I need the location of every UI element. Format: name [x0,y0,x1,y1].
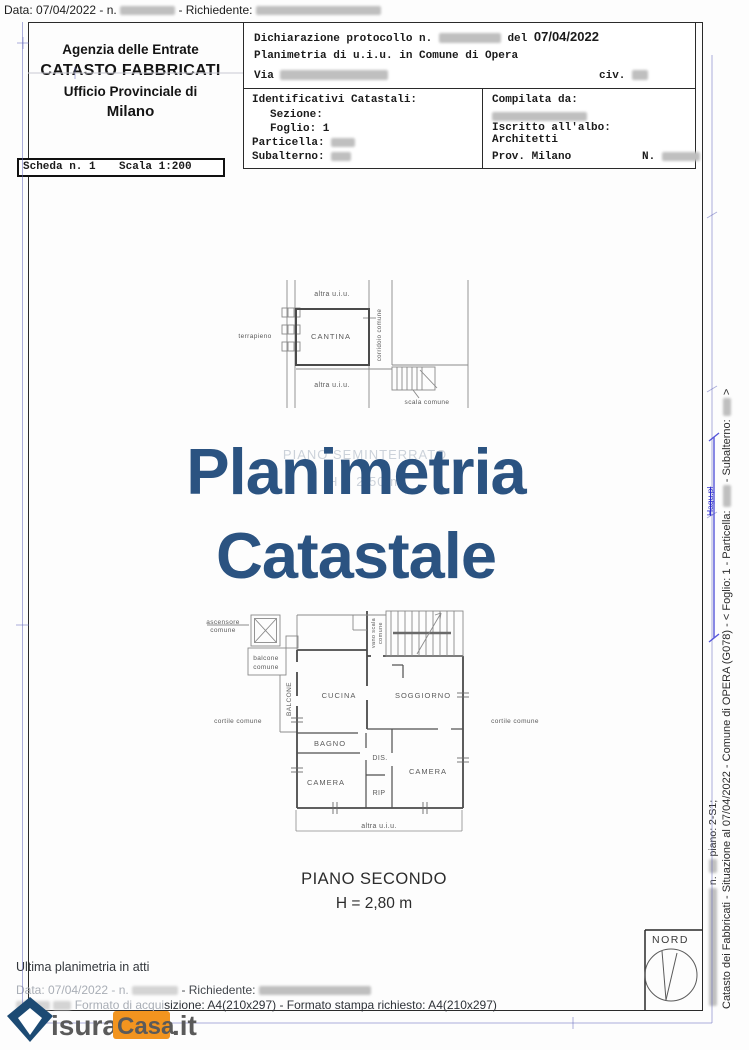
agency-line1: Agenzia delle Entrate [33,40,228,59]
visuracasa-logo[interactable]: isura Casa .it [5,994,215,1048]
height-caption: H = 2,80 m [254,895,494,913]
ultima-planimetria-label: Ultima planimetria in atti [16,960,149,974]
side-text-part3: > [721,389,733,395]
floor-caption: PIANO SECONDO [254,870,494,889]
albo-number: N. [642,151,700,163]
protocol-prefix: Dichiarazione protocollo n. [254,33,432,45]
vano-scala-label-1: vano scala [371,617,377,648]
vano-scala-label-2: comune [378,622,384,644]
compiler-title: Compilata da: [492,94,578,106]
redacted-particella [331,138,355,147]
identifiers-foglio: Foglio: 1 [270,123,329,135]
watermark: Planimetria Catastale [0,430,712,598]
identifiers-box: Identificativi Catastali: Sezione: Fogli… [243,88,696,169]
redacted-side-address [709,888,717,1006]
agency-line4: Milano [33,101,228,122]
top-scan-bar: Data: 07/04/2022 - n. - Richiedente: [4,3,381,17]
watermark-line2: Catastale [0,514,712,598]
redacted-side-subalterno [723,398,731,416]
redacted-side-number [709,859,717,873]
civ-line: civ. [599,70,648,82]
logo-it-text: .it [172,1010,197,1041]
scheda-number: Scheda n. 1 [23,161,96,173]
declaration-line2: Planimetria di u.i.u. in Comune di Opera [254,50,518,62]
via-label: Via [254,70,274,82]
balcone-comune-label-1: balcone [253,655,279,662]
cantina-stairs [392,367,437,398]
top-bar-richiedente-label: - Richiedente: [178,3,252,17]
n-label: N. [642,151,655,163]
logo-isura-text: isura [51,1010,118,1041]
civ-label: civ. [599,70,625,82]
redacted-protocol-number [120,6,175,15]
redacted-subalterno [331,152,351,161]
visuracasa-house-icon [7,997,53,1042]
redacted-protocol-no [439,33,501,43]
scheda-scale: Scala 1:200 [119,161,192,173]
dis-label: DIS. [372,755,387,762]
redacted-compiler-name [492,112,587,121]
side-piano-label: piano: 2-S1; [707,800,719,857]
redacted-footer-requester [259,986,371,995]
ascensore-label-2: comune [210,627,236,634]
redacted-street [280,70,388,80]
albo-line1: Iscritto all'albo: [492,122,611,134]
camera1-label: CAMERA [307,778,345,787]
declaration-box: Dichiarazione protocollo n. del 07/04/20… [243,22,696,90]
cucina-label: CUCINA [322,691,357,700]
albo-line2: Architetti [492,134,558,146]
redacted-civ [632,70,648,80]
main-floor-plan: ascensore comune balcone comune BALCONE … [183,598,563,848]
identifiers-subalterno: Subalterno: [252,151,351,163]
watermark-line1: Planimetria [0,430,712,514]
redacted-albo-number [662,152,700,161]
agency-header: Agenzia delle Entrate CATASTO FABBRICATI… [33,40,228,122]
soggiorno-label: SOGGIORNO [395,691,451,700]
cortile-comune-left-label: cortile comune [214,718,262,725]
particella-label: Particella: [252,137,325,149]
agency-line2: CATASTO FABBRICATI [33,59,228,83]
cantina-walls [282,280,468,408]
scala-comune-label: scala comune [405,399,450,406]
protocol-date: 07/04/2022 [534,29,599,44]
subalterno-label: Subalterno: [252,151,325,163]
side-text-part1: Catasto dei Fabbricati - Situazione al 0… [721,510,733,1009]
redacted-requester-name [256,6,381,15]
top-bar-date-label: Data: 07/04/2022 - n. [4,3,117,17]
main-plan-labels: ascensore comune balcone comune BALCONE … [206,617,539,830]
rip-label: RIP [373,790,386,797]
identifiers-sezione: Sezione: [270,109,323,121]
agency-line3: Ufficio Provinciale di [33,83,228,101]
declaration-protocol-line: Dichiarazione protocollo n. del 07/04/20… [254,29,599,45]
camera2-label: CAMERA [409,767,447,776]
column-divider [482,89,483,168]
prov-label: Prov. Milano [492,151,571,163]
altra-uiu-bottom-label: altra u.i.u. [314,382,350,389]
terrapieno-label: terrapieno [238,333,271,340]
scheda-box: Scheda n. 1 Scala 1:200 [17,158,225,177]
cortile-comune-right-label: cortile comune [491,718,539,725]
identifiers-particella: Particella: [252,137,355,149]
cantina-floor-plan: terrapieno altra u.i.u. CANTINA corridoi… [218,272,488,417]
nord-label: NORD [652,934,689,946]
protocol-del: del [507,33,527,45]
identifiers-title: Identificativi Catastali: [252,94,417,106]
cantina-room-label: CANTINA [311,332,351,341]
balcone-comune-label-2: comune [253,664,279,671]
ascensore-label-1: ascensore [206,619,240,626]
bagno-label: BAGNO [314,739,346,748]
side-text-line2: n. piano: 2-S1; [707,800,719,1006]
balcone-strip-label: BALCONE [286,682,293,716]
declaration-via-line: Via [254,70,388,82]
cadastral-document-page: Data: 07/04/2022 - n. - Richiedente: Age… [0,0,749,1050]
altra-uiu-label: altra u.i.u. [361,823,397,830]
side-n-label: n. [707,876,719,885]
altra-uiu-top-label: altra u.i.u. [314,291,350,298]
corridoio-comune-label: corridoio comune [377,309,383,362]
logo-casa-text: Casa [117,1013,175,1040]
